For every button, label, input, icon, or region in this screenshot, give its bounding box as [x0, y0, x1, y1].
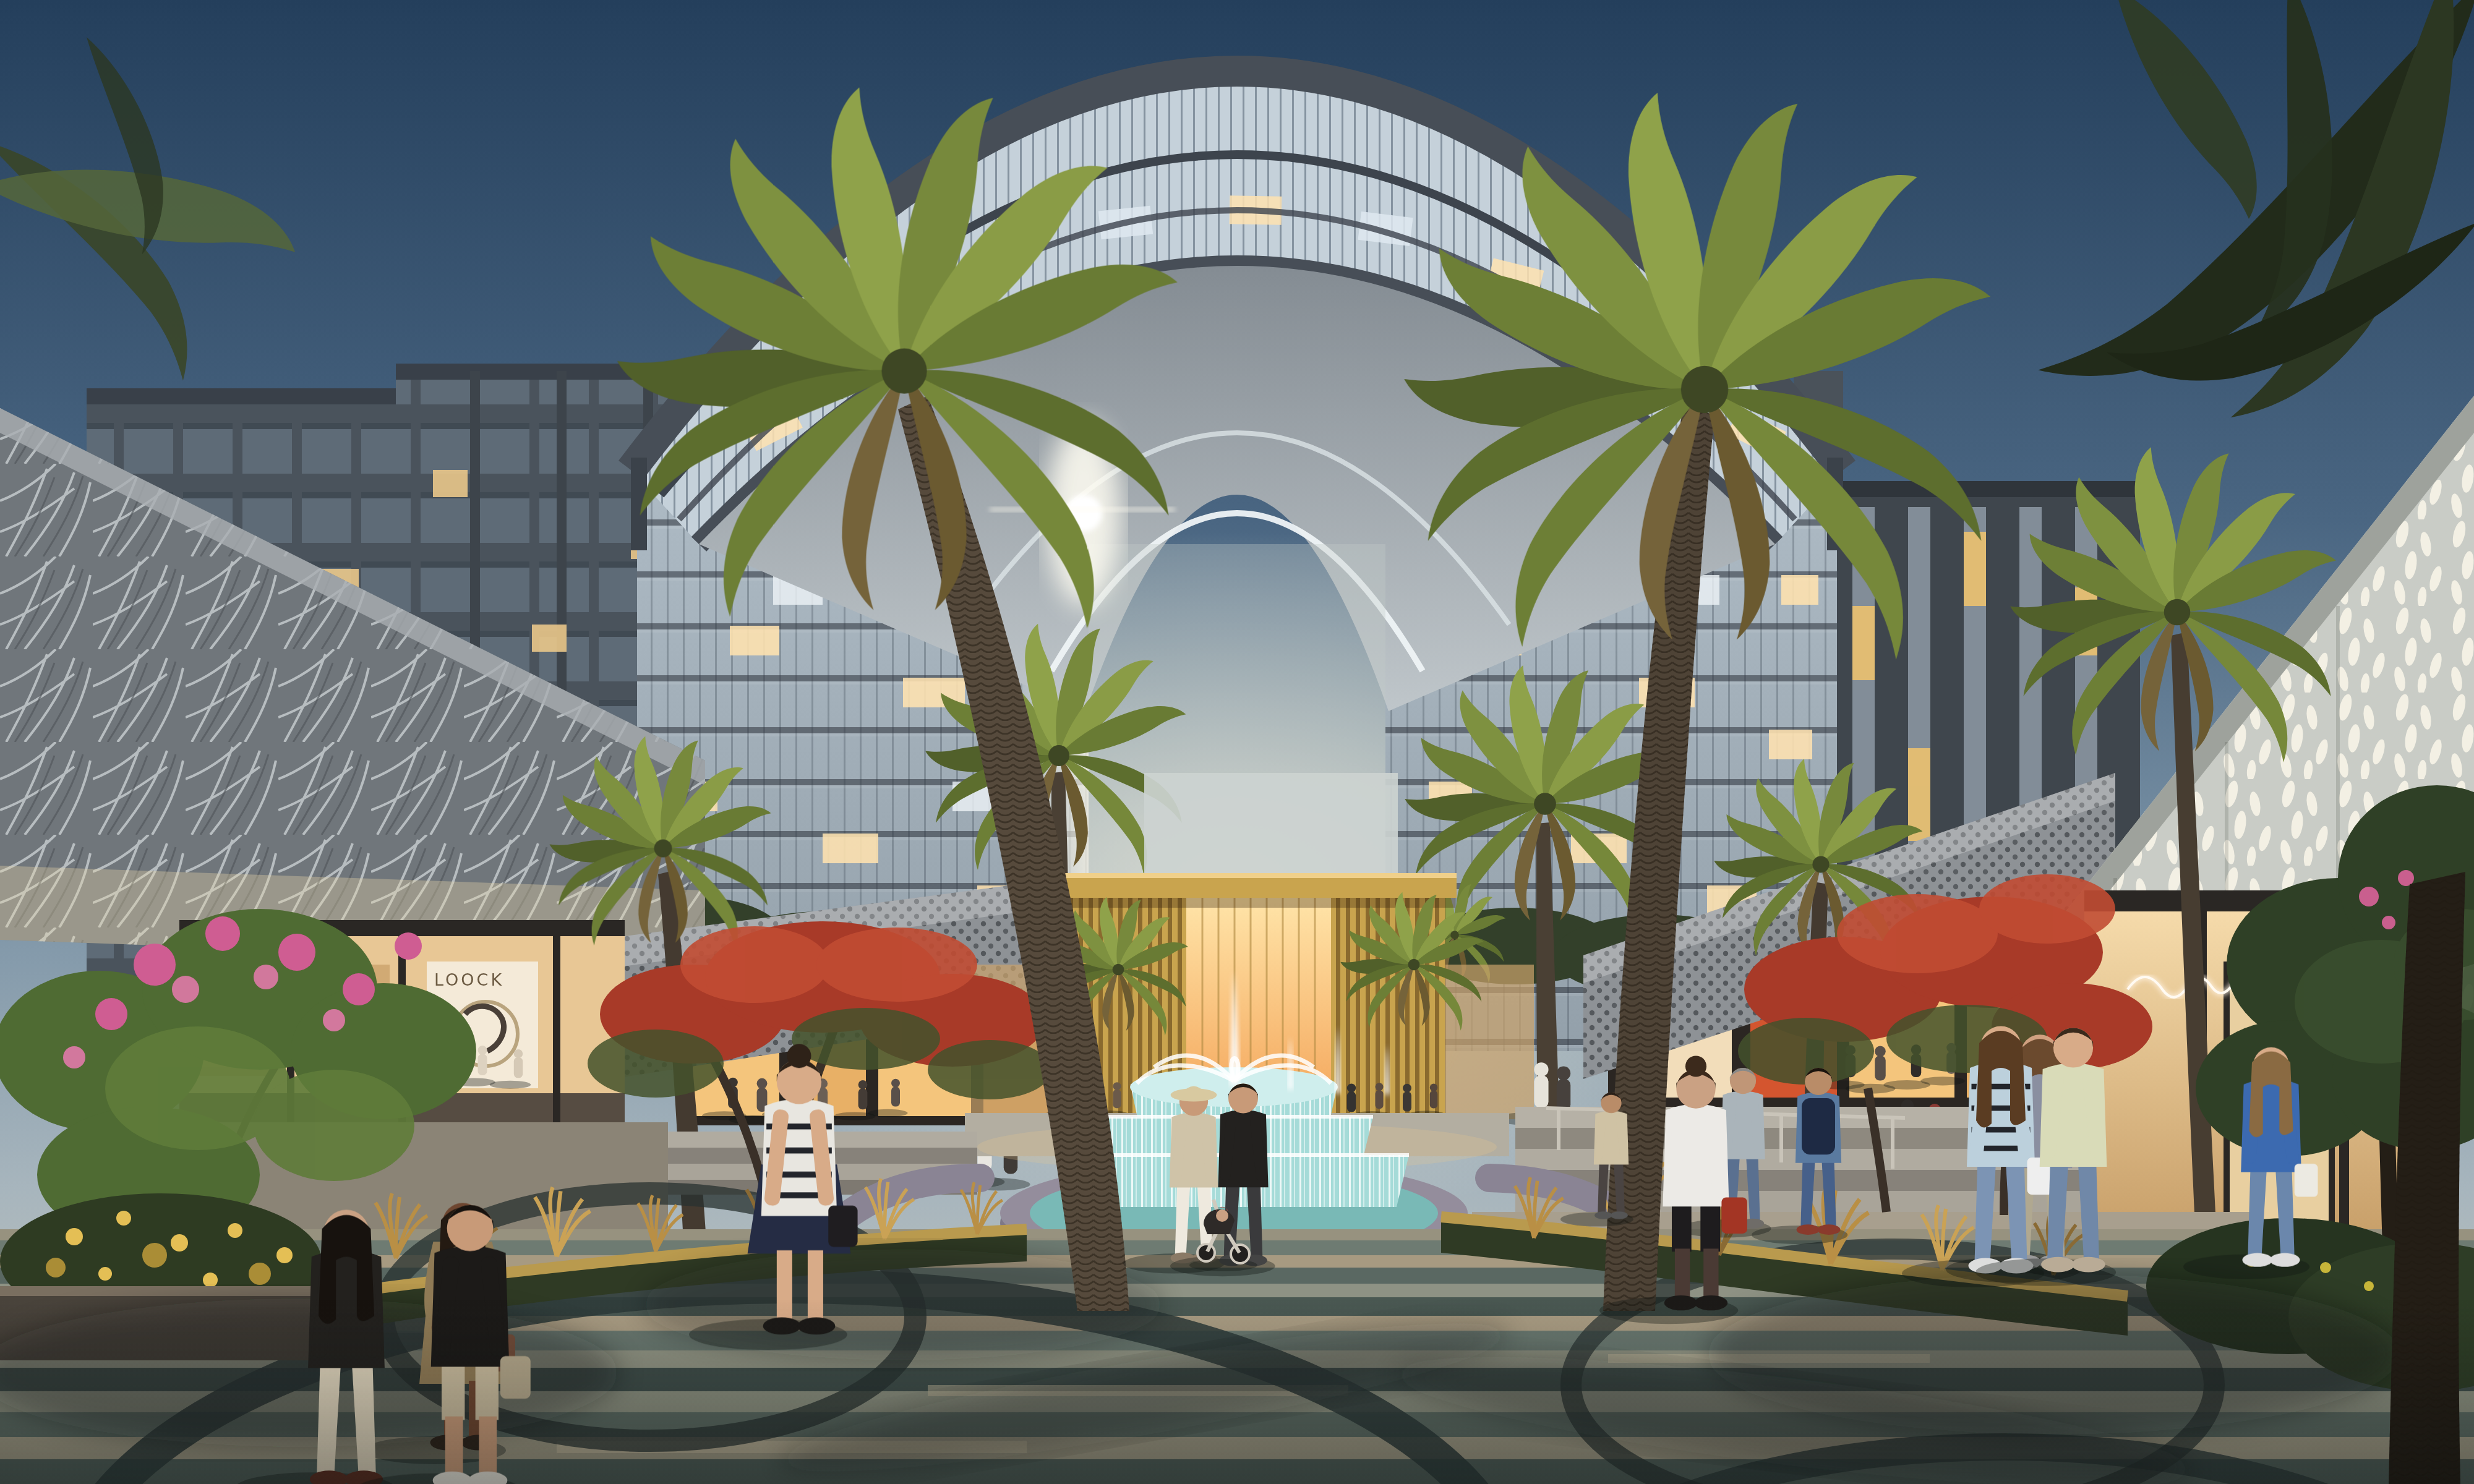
pavilion-canopy	[1061, 877, 1457, 898]
plaza-rendering: Facebook LOOCK	[0, 0, 2474, 1484]
rendering-stage: Facebook LOOCK	[0, 0, 2474, 1484]
boutique-poster-text: LOOCK	[434, 970, 504, 989]
bottom-vignette	[0, 1298, 2474, 1484]
